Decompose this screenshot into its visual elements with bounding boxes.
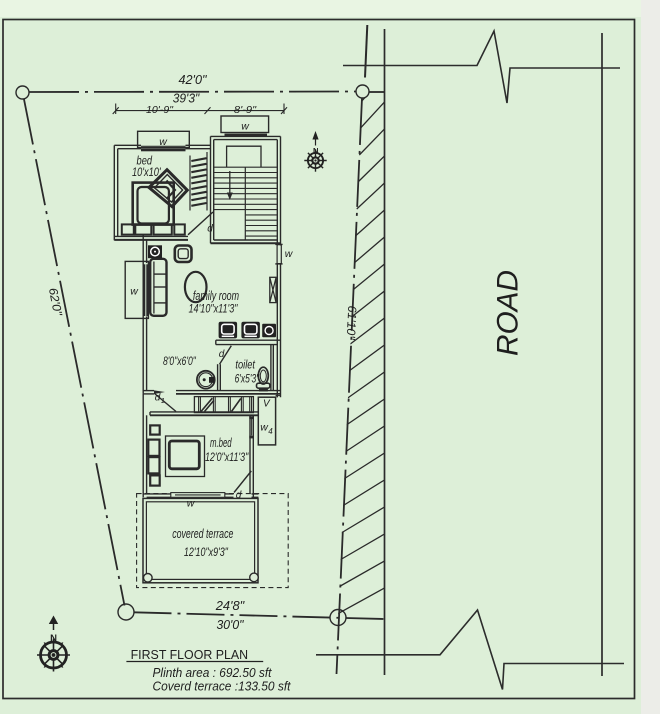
svg-text:m.bed: m.bed [210,436,232,450]
svg-text:d: d [219,349,225,360]
svg-text:bed: bed [137,154,153,168]
svg-text:8'-9": 8'-9" [234,105,257,116]
svg-text:Coverd terrace :133.50 sft: Coverd terrace :133.50 sft [153,679,292,694]
svg-text:10'-9": 10'-9" [146,105,173,116]
svg-text:24'8": 24'8" [215,598,246,613]
svg-text:toilet: toilet [235,358,255,372]
svg-text:8'0"x6'0": 8'0"x6'0" [163,354,196,368]
svg-text:42'0": 42'0" [179,73,208,87]
svg-text:12'0"x11'3": 12'0"x11'3" [205,450,249,464]
svg-text:61'10": 61'10" [344,305,360,340]
svg-text:14'10"x11'3": 14'10"x11'3" [189,302,239,316]
svg-text:N: N [313,146,318,155]
svg-text:ROAD: ROAD [492,270,525,356]
svg-text:covered terrace: covered terrace [172,527,233,541]
svg-text:4: 4 [268,427,273,436]
svg-text:FIRST FLOOR PLAN: FIRST FLOOR PLAN [131,647,249,662]
svg-text:6'x5'3": 6'x5'3" [235,374,260,386]
svg-text:39'3": 39'3" [173,92,200,106]
svg-text:d: d [207,224,213,235]
svg-text:1: 1 [161,396,165,405]
svg-text:12'10"x9'3": 12'10"x9'3" [184,547,229,559]
svg-text:30'0": 30'0" [217,617,245,632]
svg-text:d: d [236,490,242,501]
svg-text:10'x10': 10'x10' [132,167,161,179]
